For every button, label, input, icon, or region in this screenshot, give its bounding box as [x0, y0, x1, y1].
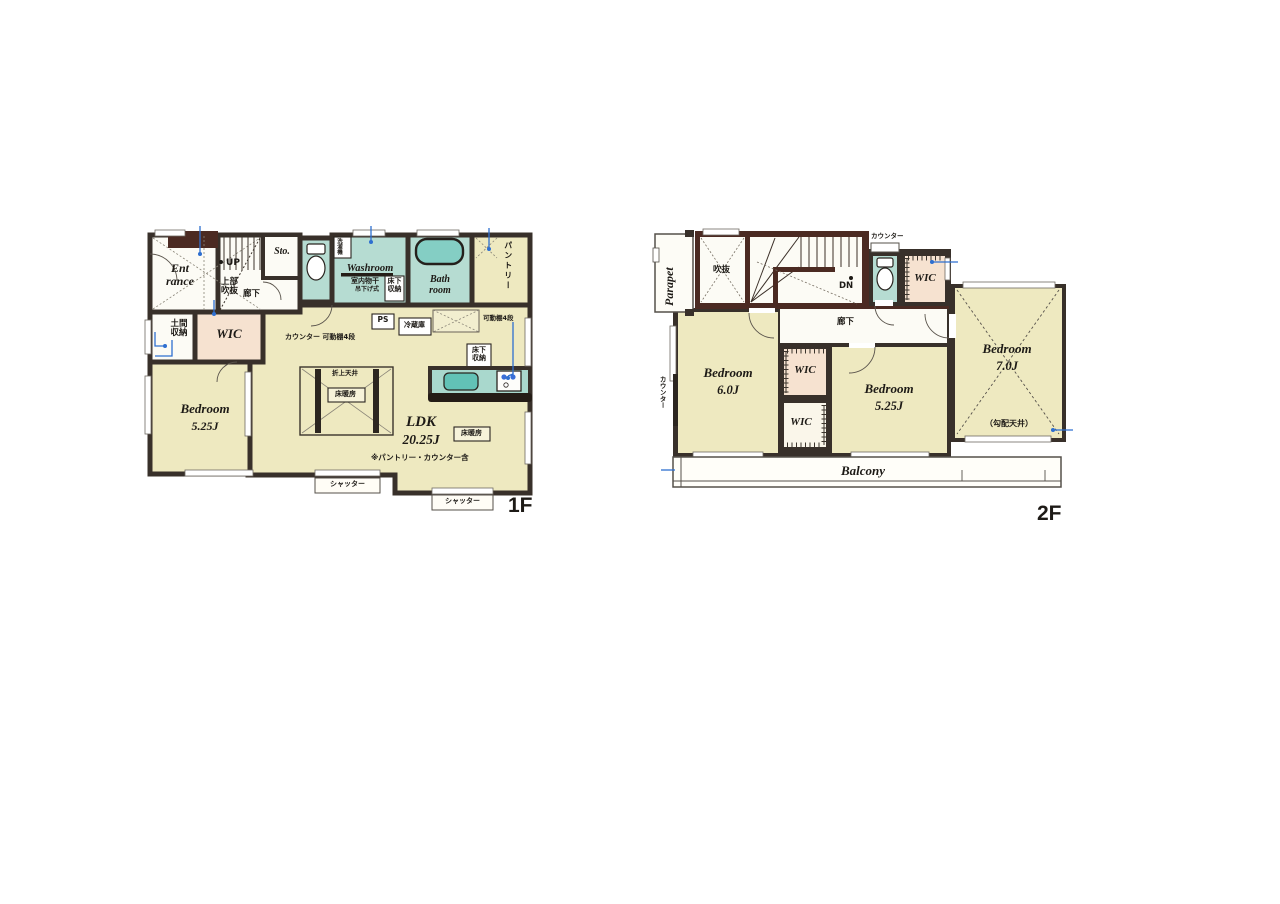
label-counter-top: カウンター	[871, 233, 904, 240]
label-note: ※パントリー・カウンター含	[371, 454, 469, 462]
label-sloped-ceiling: （勾配天井）	[967, 420, 1051, 429]
label-up: UP	[223, 259, 243, 269]
label-bedroom6: Bedroom	[693, 366, 763, 380]
sink-icon	[444, 373, 478, 390]
label-wic-low: WIC	[783, 416, 819, 428]
label-floor-2f: 2F	[1037, 502, 1062, 525]
toilet-icon	[307, 244, 325, 280]
stove-icon	[497, 371, 521, 391]
label-bedroom-1f-size: 5.25J	[173, 420, 237, 433]
label-bedroom7: Bedroom	[971, 342, 1043, 356]
label-bedroom525-size: 5.25J	[853, 400, 925, 414]
shelf-box	[433, 310, 479, 332]
counter-box-top	[871, 243, 899, 252]
label-bedroom7-size: 7.0J	[971, 360, 1043, 374]
label-bedroom6-size: 6.0J	[693, 384, 763, 398]
floor1-plan: Ent rance UP 上部吹抜 廊下 Sto. Washroom 洗濯機 室…	[145, 226, 537, 526]
floor2-plan: Parapet 吹抜 DN カウンター WIC 廊下 Bedroom 6.0J …	[653, 226, 1077, 530]
label-ps: PS	[375, 316, 391, 324]
label-counter-shelf: カウンター 可動棚4段	[285, 334, 355, 342]
label-washing-machine: 洗濯機	[336, 238, 342, 260]
floor-plan-sheet: Ent rance UP 上部吹抜 廊下 Sto. Washroom 洗濯機 室…	[0, 0, 1280, 904]
label-parapet: Parapet	[663, 244, 676, 306]
label-upper-void: 上部吹抜	[220, 278, 239, 297]
label-counter-left: カウンター	[658, 376, 665, 428]
label-fridge: 冷蔵庫	[404, 322, 425, 330]
label-underfloor-kitchen: 床下収納	[471, 347, 487, 362]
kitchen-counter	[428, 368, 532, 402]
label-indoor-drying: 室内物干	[351, 278, 379, 286]
label-doma-storage: 土間収納	[169, 320, 189, 339]
label-bathroom: Bath room	[423, 274, 457, 296]
counter-strip-left	[673, 374, 678, 426]
label-void: 吹抜	[713, 266, 730, 275]
label-pantry: パントリー	[503, 241, 512, 303]
label-balcony: Balcony	[823, 464, 903, 478]
label-hanging-type: 吊下げ式	[355, 287, 379, 294]
label-hallway-2f: 廊下	[837, 318, 854, 327]
label-entrance: Ent rance	[159, 262, 201, 288]
label-shutter-right: シャッター	[432, 498, 493, 506]
label-wic-top: WIC	[907, 272, 943, 284]
label-movable-shelf: 可動棚4段	[483, 315, 514, 322]
label-floor-heating-right: 床暖房	[461, 430, 482, 438]
label-washroom: Washroom	[339, 263, 401, 275]
toilet-icon-2f	[877, 258, 893, 290]
label-wic-mid: WIC	[787, 364, 823, 376]
label-underfloor-wash: 床下収納	[386, 278, 403, 293]
label-dn: DN	[839, 282, 853, 291]
label-floor-heating-center: 床暖房	[335, 391, 356, 399]
label-wic-1f: WIC	[213, 327, 245, 341]
label-ldk-size: 20.25J	[385, 433, 457, 448]
label-bedroom-1f: Bedroom	[173, 402, 237, 416]
label-coffered-ceiling: 折上天井	[332, 370, 358, 377]
bathtub-icon	[416, 239, 463, 264]
label-shutter-left: シャッター	[315, 481, 380, 489]
label-bedroom525: Bedroom	[853, 382, 925, 396]
label-ldk: LDK	[393, 414, 449, 431]
label-storage: Sto.	[267, 246, 297, 257]
label-hallway-1f: 廊下	[243, 290, 260, 299]
label-floor-1f: 1F	[508, 494, 533, 517]
